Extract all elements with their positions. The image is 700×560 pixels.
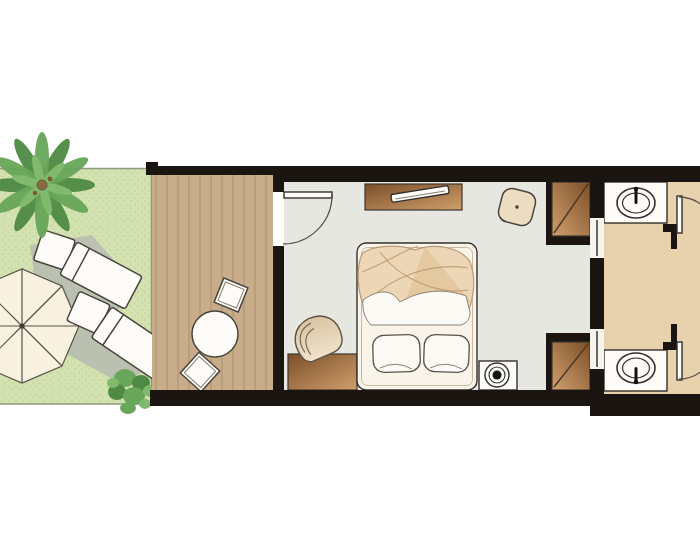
wardrobe-bottom [546, 333, 592, 390]
door-leaf [677, 196, 682, 233]
floor-plan [0, 0, 700, 560]
pillow-right [423, 334, 469, 373]
faucet-knob [634, 380, 639, 385]
wall-divider-middle [590, 258, 604, 329]
wall-top-deck [146, 166, 273, 175]
wall-top-main [273, 166, 700, 182]
coconut [48, 177, 53, 182]
deck-terrace [152, 174, 273, 392]
faucet-knob [634, 187, 639, 192]
wall-divider-upper [590, 166, 604, 218]
wall-left-lower [273, 246, 284, 390]
round-table [192, 311, 238, 357]
door-leaf [677, 342, 682, 380]
wall-left-upper [273, 175, 284, 192]
wall-divider-lower [590, 369, 604, 416]
door-jamb-bottom-post [671, 324, 677, 350]
door-jamb-top-post [671, 224, 677, 249]
pillow-left [372, 334, 420, 373]
entrance-door-leaf [284, 192, 332, 198]
washbasin-top [604, 182, 667, 223]
palm-trunk [37, 180, 47, 190]
floor-plan-drawing [0, 0, 700, 560]
parasol-pole [19, 323, 24, 328]
wall-bottom-deck [150, 390, 273, 406]
sheet-fold [363, 291, 470, 325]
wall-bottom-bathroom [596, 394, 700, 416]
desk [288, 354, 357, 390]
wardrobe-top [546, 182, 592, 245]
lamp-center [493, 371, 502, 380]
wall-bottom-bedroom [273, 390, 604, 406]
bedside-lamp-table [479, 361, 517, 390]
double-bed [357, 243, 477, 390]
washbasin-bottom [604, 350, 667, 391]
coconut [33, 191, 37, 195]
console-with-tv [365, 184, 462, 210]
